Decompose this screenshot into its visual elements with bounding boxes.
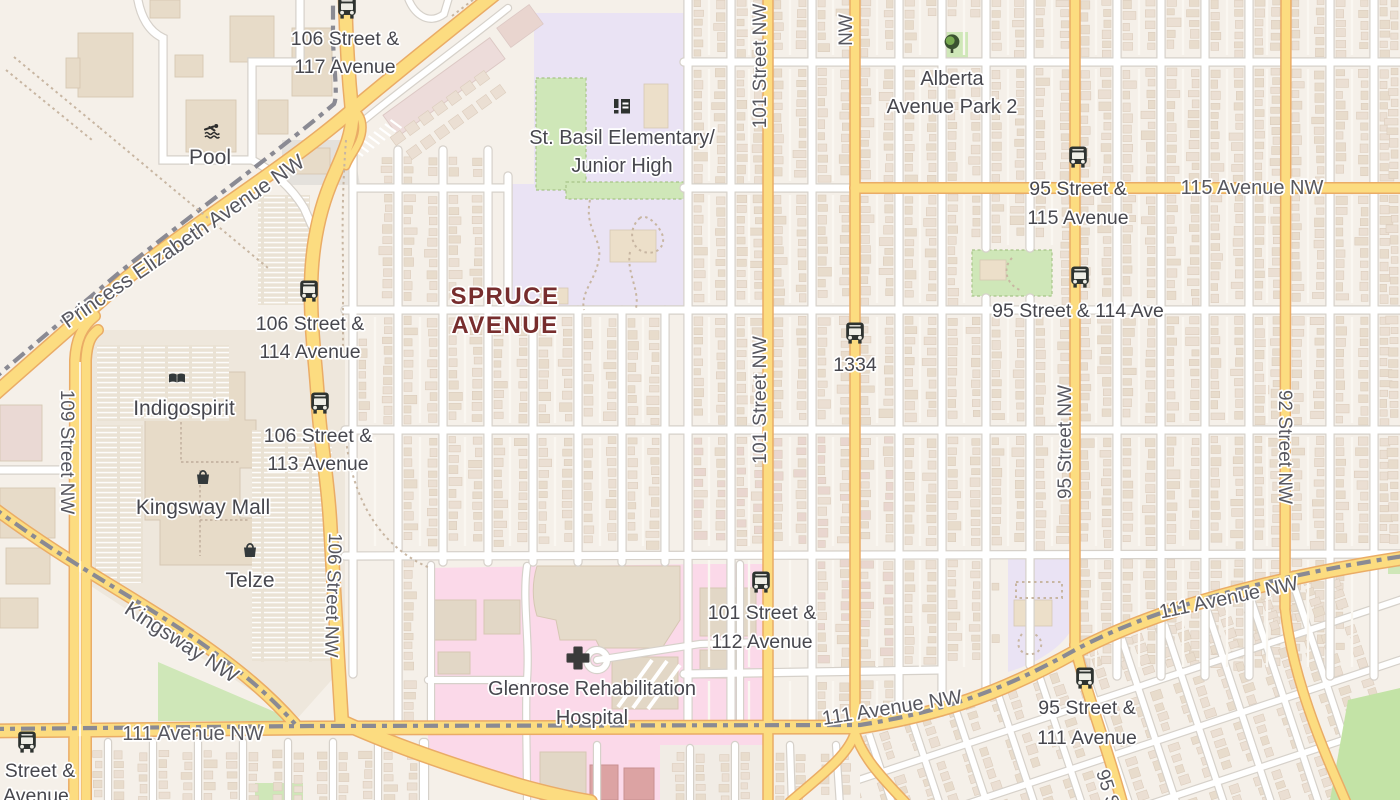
svg-text:95 Street & 114 Ave: 95 Street & 114 Ave	[992, 300, 1164, 322]
svg-text:Kingsway Mall: Kingsway Mall	[136, 496, 270, 519]
svg-text:113 Avenue: 113 Avenue	[267, 453, 368, 475]
svg-text:Alberta: Alberta	[920, 68, 984, 90]
svg-text:112 Avenue: 112 Avenue	[711, 631, 812, 653]
svg-text:Street &: Street &	[5, 760, 75, 782]
svg-text:111 Avenue: 111 Avenue	[1037, 727, 1137, 749]
svg-text:101 Street NW: 101 Street NW	[750, 4, 771, 129]
svg-text:AVENUE: AVENUE	[451, 312, 558, 339]
svg-text:115 Avenue: 115 Avenue	[1027, 207, 1128, 229]
svg-text:111 Avenue NW: 111 Avenue NW	[122, 723, 263, 745]
svg-text:115 Avenue NW: 115 Avenue NW	[1181, 177, 1324, 199]
svg-text:Telze: Telze	[225, 569, 274, 592]
svg-text:Hospital: Hospital	[556, 707, 628, 729]
svg-text:106 Street &: 106 Street &	[256, 313, 364, 335]
svg-text:Junior High: Junior High	[571, 155, 672, 177]
svg-text:92 Street NW: 92 Street NW	[1274, 390, 1295, 504]
svg-text:101 Street NW: 101 Street NW	[749, 335, 771, 463]
svg-text:95 Street &: 95 Street &	[1029, 178, 1127, 200]
svg-text:SPRUCE: SPRUCE	[450, 283, 559, 310]
svg-text:106 Street &: 106 Street &	[264, 425, 372, 447]
svg-text:114 Avenue: 114 Avenue	[259, 341, 360, 363]
svg-text:95 Street &: 95 Street &	[1038, 697, 1136, 719]
svg-text:St. Basil Elementary/: St. Basil Elementary/	[529, 127, 715, 149]
svg-text:NW: NW	[836, 14, 857, 46]
svg-text:106 Street &: 106 Street &	[291, 28, 399, 50]
svg-text:1334: 1334	[833, 354, 877, 376]
svg-text:Avenue: Avenue	[3, 785, 69, 800]
svg-text:95 Street NW: 95 Street NW	[1055, 385, 1076, 499]
svg-text:117 Avenue: 117 Avenue	[294, 56, 395, 78]
svg-text:106 Street NW: 106 Street NW	[320, 533, 345, 658]
svg-text:Pool: Pool	[189, 146, 231, 169]
svg-text:Avenue Park 2: Avenue Park 2	[887, 96, 1018, 118]
svg-text:109 Street NW: 109 Street NW	[56, 390, 77, 515]
svg-text:Indigospirit: Indigospirit	[133, 397, 235, 420]
svg-text:Glenrose Rehabilitation: Glenrose Rehabilitation	[488, 678, 696, 700]
svg-text:101 Street &: 101 Street &	[708, 602, 816, 624]
